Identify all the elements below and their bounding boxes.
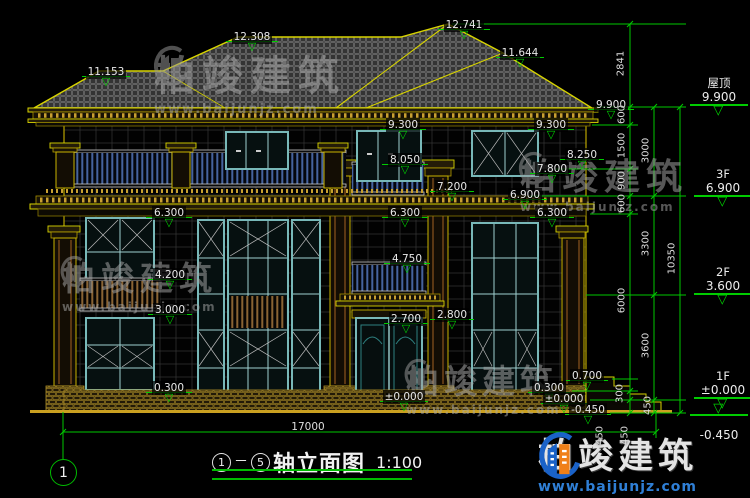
dim-3000: 3000 — [641, 129, 652, 173]
balcony-railing-3f-left — [50, 143, 348, 188]
elevation-marker-0300-left: 0.300▽ — [146, 376, 192, 393]
elevation-drawing-sheet: 柏竣建筑 www.baijunjz.com 柏竣建筑 www.baijunjz.… — [0, 0, 750, 498]
elevation-marker-8050: 8.050▽ — [382, 148, 428, 165]
elevation-marker-neg0450: -0.450▽ — [565, 398, 611, 415]
watermark-logo-color: 柏竣建筑 www.baijunjz.com — [532, 428, 698, 495]
floor-marker-3f: 3F6.900▽ — [694, 168, 750, 197]
dim-6000: 6000 — [617, 279, 628, 323]
elevation-marker-6900: 6.900▽ — [503, 183, 547, 200]
watermark-1: 柏竣建筑 www.baijunjz.com — [148, 42, 346, 117]
elevation-marker-2700: 2.700▽ — [384, 307, 428, 324]
watermark-url: www.baijunjz.com — [154, 102, 346, 117]
dim-450-steps: 450 — [595, 414, 606, 458]
elevation-marker-6300-c: 6.300▽ — [530, 201, 574, 218]
elevation-marker-6300-a: 6.300▽ — [146, 201, 192, 218]
elevation-marker-7200: 7.200▽ — [430, 175, 474, 192]
dim-3300: 3300 — [641, 222, 652, 266]
elevation-marker-6300-b: 6.300▽ — [382, 201, 428, 218]
dim-300: 300 — [615, 372, 626, 416]
elevation-marker-11153: 11.153▽ — [82, 60, 130, 77]
elevation-marker-2800: 2.800▽ — [430, 303, 474, 320]
dim-roof-height: 2841 — [616, 42, 627, 86]
elevation-marker-0000-door: ±0.000▽ — [380, 385, 428, 402]
floor-marker-2f: 2F3.600▽ — [694, 266, 750, 295]
elevation-marker-4200: 4.200▽ — [148, 263, 192, 280]
elevation-marker-9300-b: 9.300▽ — [528, 113, 574, 130]
watermark-url: www.baijunjz.com — [62, 300, 218, 314]
elevation-marker-7800: 7.800▽ — [530, 157, 574, 174]
dim-450-a: 450 — [620, 414, 631, 458]
dim-450-b: 450 — [643, 384, 654, 428]
dim-overall-width: 17000 — [278, 421, 338, 433]
elevation-marker-9300-a: 9.300▽ — [380, 113, 426, 130]
axis-bubble-1: 1 — [50, 459, 77, 486]
title-underline — [212, 469, 412, 480]
elevation-marker-12308: 12.308▽ — [226, 25, 278, 42]
dim-600-b: 600 — [617, 182, 628, 226]
elevation-marker-0700: 0.700▽ — [566, 364, 608, 381]
floor-marker-base: ▽-0.450 — [690, 414, 748, 442]
floor-marker-roof: 屋顶9.900▽ — [690, 77, 748, 106]
elevation-marker-12741: 12.741▽ — [438, 13, 490, 30]
elevation-marker-4750: 4.750▽ — [384, 247, 430, 264]
watermark-url: www.baijunjz.com — [406, 403, 561, 417]
watermark-3: 柏竣建筑 www.baijunjz.com — [56, 252, 218, 314]
axis-range-dash: － — [234, 455, 248, 469]
floor-marker-1f: 1F±0.000▽ — [694, 370, 750, 399]
dim-total-height: 10350 — [667, 237, 678, 281]
elevation-marker-3000: 3.000▽ — [148, 298, 192, 315]
dim-3600: 3600 — [641, 324, 652, 368]
elevation-marker-11644: 11.644▽ — [496, 41, 544, 58]
